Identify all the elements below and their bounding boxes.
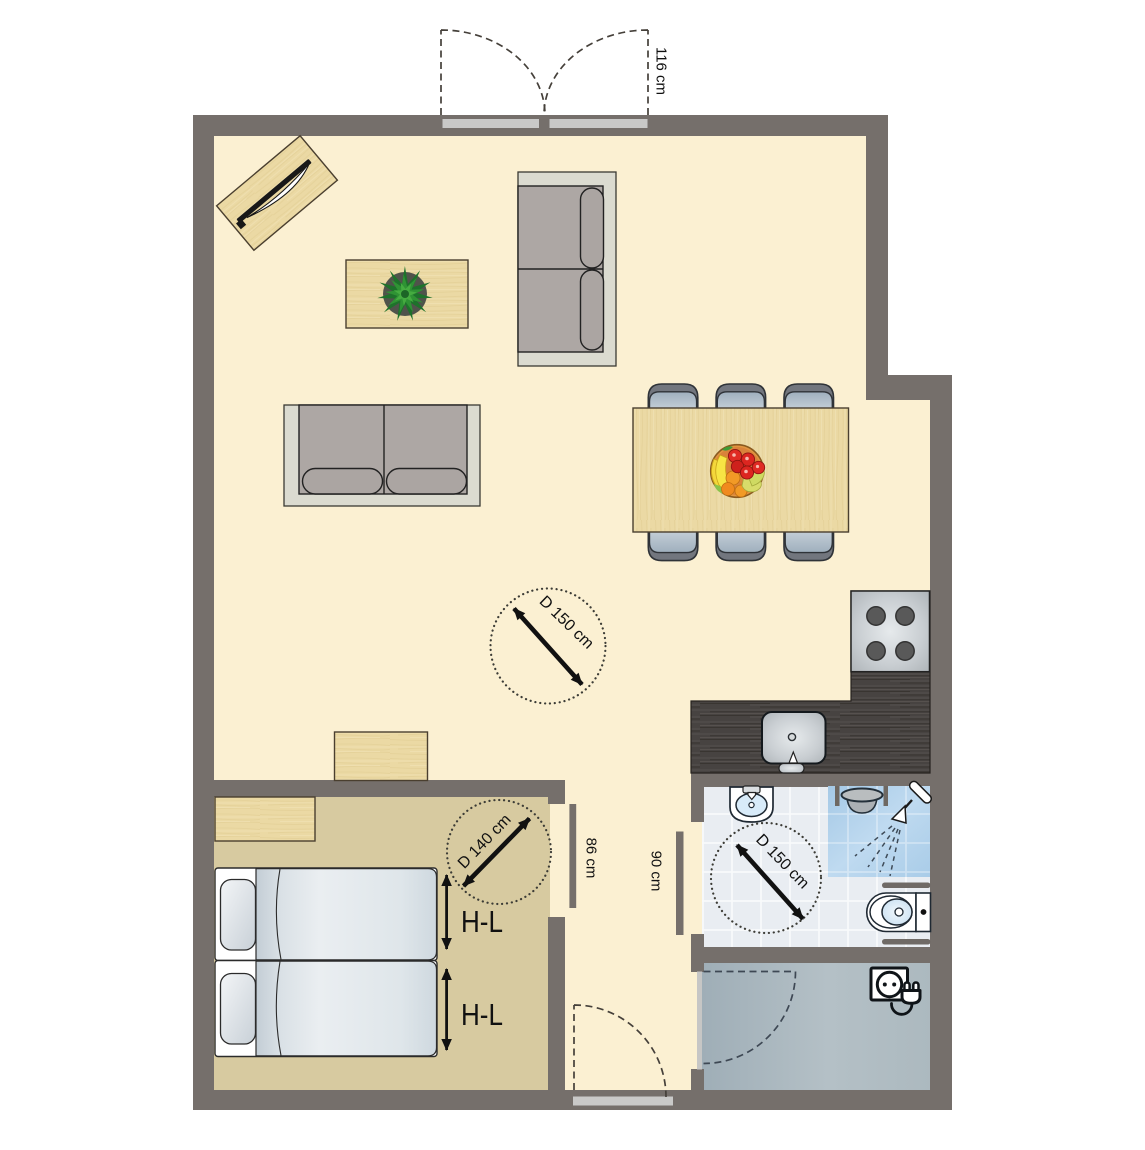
svg-text:86 cm: 86 cm: [583, 838, 600, 879]
svg-text:H-L: H-L: [461, 905, 503, 940]
svg-text:116 cm: 116 cm: [653, 47, 670, 95]
svg-text:H-L: H-L: [461, 998, 503, 1033]
svg-text:90 cm: 90 cm: [648, 851, 665, 892]
